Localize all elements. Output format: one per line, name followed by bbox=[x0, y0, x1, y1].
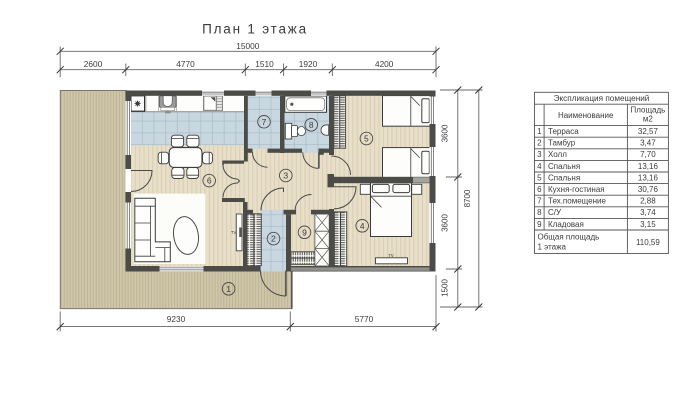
svg-text:32,57: 32,57 bbox=[638, 127, 659, 136]
svg-text:15000: 15000 bbox=[236, 41, 259, 51]
svg-text:3,47: 3,47 bbox=[640, 139, 656, 148]
svg-text:7: 7 bbox=[262, 117, 267, 127]
svg-text:3: 3 bbox=[283, 171, 288, 181]
svg-text:2: 2 bbox=[271, 234, 276, 244]
svg-text:3,74: 3,74 bbox=[640, 208, 656, 217]
svg-text:9: 9 bbox=[537, 220, 542, 229]
svg-text:3600: 3600 bbox=[441, 214, 450, 232]
svg-text:7,70: 7,70 bbox=[640, 150, 656, 159]
svg-text:13,16: 13,16 bbox=[638, 162, 659, 171]
svg-text:1 этажа: 1 этажа bbox=[538, 243, 567, 252]
svg-text:Экспликация помещений: Экспликация помещений bbox=[554, 94, 650, 103]
svg-text:м2: м2 bbox=[643, 115, 654, 124]
svg-text:1510: 1510 bbox=[255, 59, 274, 69]
svg-text:5: 5 bbox=[537, 173, 542, 182]
svg-text:Тех.помещение: Тех.помещение bbox=[548, 197, 606, 206]
svg-text:Спальня: Спальня bbox=[548, 173, 580, 182]
svg-text:Терраса: Терраса bbox=[548, 127, 579, 136]
svg-text:1920: 1920 bbox=[299, 59, 318, 69]
svg-text:Площадь: Площадь bbox=[630, 106, 665, 115]
svg-text:4: 4 bbox=[360, 221, 365, 231]
svg-text:2600: 2600 bbox=[84, 59, 103, 69]
svg-text:4200: 4200 bbox=[375, 59, 394, 69]
svg-text:Наименование: Наименование bbox=[558, 111, 614, 120]
svg-text:1: 1 bbox=[226, 284, 231, 294]
svg-text:2: 2 bbox=[537, 139, 542, 148]
svg-text:4: 4 bbox=[537, 162, 542, 171]
svg-text:8: 8 bbox=[537, 208, 542, 217]
svg-text:План 1 этажа: План 1 этажа bbox=[202, 22, 308, 37]
svg-text:1500: 1500 bbox=[441, 279, 450, 297]
svg-text:4770: 4770 bbox=[176, 59, 195, 69]
svg-text:3: 3 bbox=[537, 150, 542, 159]
svg-text:Тамбур: Тамбур bbox=[548, 139, 576, 148]
svg-text:TV: TV bbox=[388, 253, 394, 258]
svg-text:3600: 3600 bbox=[441, 124, 450, 142]
svg-text:5: 5 bbox=[364, 134, 369, 144]
svg-text:30,76: 30,76 bbox=[638, 185, 659, 194]
svg-text:7: 7 bbox=[537, 197, 542, 206]
svg-text:Кладовая: Кладовая bbox=[548, 220, 584, 229]
svg-text:8: 8 bbox=[309, 120, 314, 130]
svg-text:Кухня-гостиная: Кухня-гостиная bbox=[548, 185, 605, 194]
svg-text:Общая площадь: Общая площадь bbox=[538, 233, 600, 242]
svg-text:110,59: 110,59 bbox=[636, 238, 660, 247]
svg-text:Спальня: Спальня bbox=[548, 162, 580, 171]
svg-text:5770: 5770 bbox=[355, 314, 374, 324]
svg-text:8700: 8700 bbox=[463, 189, 472, 207]
svg-text:6: 6 bbox=[537, 185, 542, 194]
svg-text:9: 9 bbox=[302, 227, 307, 237]
svg-text:3,15: 3,15 bbox=[640, 220, 656, 229]
svg-text:С/У: С/У bbox=[548, 208, 562, 217]
svg-text:9230: 9230 bbox=[167, 314, 186, 324]
svg-text:2,88: 2,88 bbox=[640, 197, 656, 206]
svg-text:TV: TV bbox=[231, 230, 237, 235]
svg-text:13,16: 13,16 bbox=[638, 173, 659, 182]
svg-text:Холл: Холл bbox=[548, 150, 567, 159]
svg-text:1: 1 bbox=[537, 127, 542, 136]
svg-text:6: 6 bbox=[207, 176, 212, 186]
